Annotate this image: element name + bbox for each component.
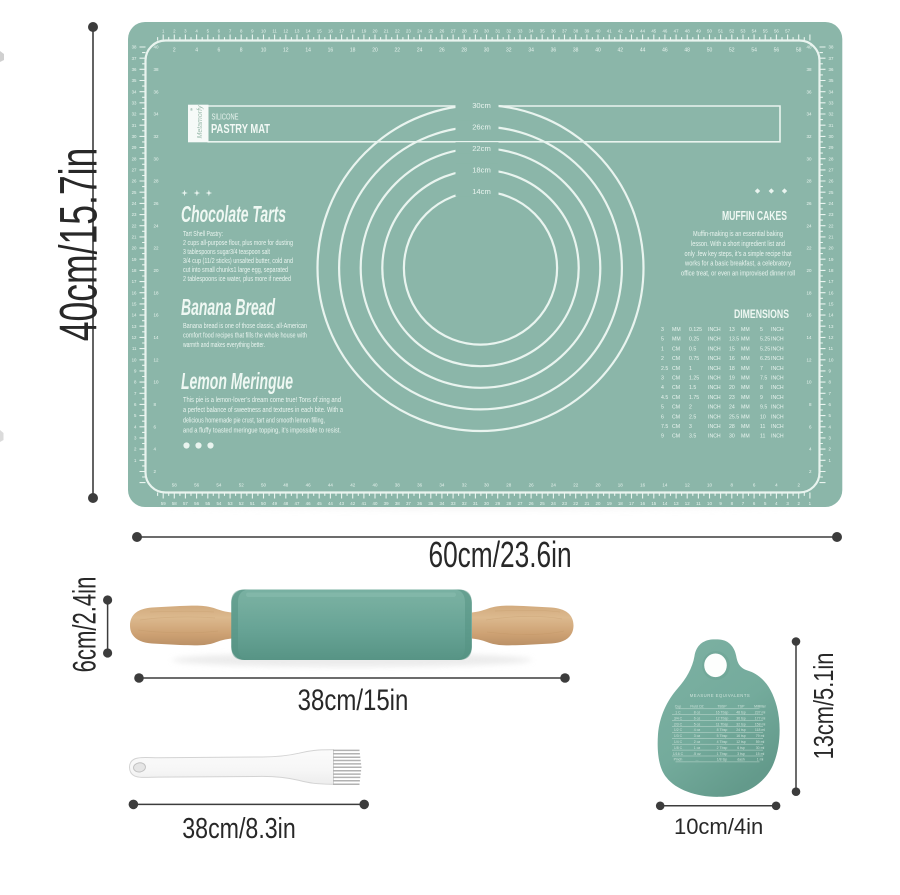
svg-text:10cm/4in: 10cm/4in bbox=[674, 814, 763, 839]
svg-text:28: 28 bbox=[729, 424, 735, 430]
svg-text:32: 32 bbox=[154, 134, 160, 139]
svg-text:28: 28 bbox=[462, 29, 467, 34]
svg-text:21: 21 bbox=[584, 501, 589, 506]
svg-text:8: 8 bbox=[760, 385, 763, 391]
svg-text:MM: MM bbox=[672, 327, 681, 333]
svg-text:54: 54 bbox=[752, 29, 757, 34]
svg-text:46: 46 bbox=[662, 48, 668, 54]
svg-text:38: 38 bbox=[806, 67, 812, 72]
svg-text:23: 23 bbox=[406, 29, 411, 34]
svg-text:29: 29 bbox=[473, 29, 478, 34]
svg-text:47: 47 bbox=[295, 501, 300, 506]
svg-text:15: 15 bbox=[651, 501, 656, 506]
svg-text:32 tsp: 32 tsp bbox=[736, 722, 746, 726]
svg-text:0.75: 0.75 bbox=[689, 356, 699, 362]
svg-text:15: 15 bbox=[317, 29, 322, 34]
svg-text:12: 12 bbox=[685, 483, 691, 488]
svg-text:MUFFIN CAKES: MUFFIN CAKES bbox=[722, 209, 787, 223]
svg-text:1/4 C: 1/4 C bbox=[674, 740, 683, 744]
svg-text:31: 31 bbox=[829, 123, 834, 128]
svg-text:44: 44 bbox=[328, 501, 333, 506]
svg-text:10: 10 bbox=[707, 501, 712, 506]
svg-text:36: 36 bbox=[829, 67, 834, 72]
svg-text:MM: MM bbox=[741, 414, 750, 420]
svg-text:19: 19 bbox=[729, 376, 735, 382]
svg-text:36: 36 bbox=[417, 501, 422, 506]
svg-text:22: 22 bbox=[154, 246, 160, 251]
svg-text:1.5: 1.5 bbox=[689, 385, 696, 391]
svg-text:52: 52 bbox=[239, 501, 244, 506]
svg-text:25: 25 bbox=[829, 190, 834, 195]
svg-text:41: 41 bbox=[607, 29, 612, 34]
svg-text:23: 23 bbox=[132, 212, 137, 217]
svg-text:INCH: INCH bbox=[708, 395, 721, 401]
svg-text:38: 38 bbox=[573, 48, 579, 54]
svg-text:37: 37 bbox=[829, 56, 834, 61]
svg-text:34: 34 bbox=[132, 89, 137, 94]
svg-text:18: 18 bbox=[806, 290, 812, 295]
svg-text:34: 34 bbox=[439, 483, 445, 488]
svg-text:1 C: 1 C bbox=[675, 711, 681, 715]
svg-text:6.25: 6.25 bbox=[760, 356, 770, 362]
svg-text:14: 14 bbox=[662, 501, 667, 506]
svg-text:INCH: INCH bbox=[771, 337, 784, 343]
svg-text:30: 30 bbox=[484, 29, 489, 34]
svg-text:CM: CM bbox=[672, 356, 680, 362]
svg-text:46: 46 bbox=[306, 483, 312, 488]
svg-text:27: 27 bbox=[829, 168, 834, 173]
svg-text:4: 4 bbox=[195, 48, 198, 54]
svg-text:INCH: INCH bbox=[708, 366, 721, 372]
svg-text:22: 22 bbox=[573, 501, 578, 506]
svg-text:177 ml: 177 ml bbox=[755, 716, 766, 720]
svg-text:...: ... bbox=[696, 758, 699, 762]
svg-text:52: 52 bbox=[729, 48, 735, 54]
svg-text:24: 24 bbox=[829, 201, 834, 206]
svg-text:26: 26 bbox=[806, 201, 812, 206]
svg-text:30: 30 bbox=[154, 156, 160, 161]
svg-text:19: 19 bbox=[132, 257, 137, 262]
svg-text:8 oz: 8 oz bbox=[694, 711, 701, 715]
svg-text:13: 13 bbox=[295, 29, 300, 34]
svg-text:28: 28 bbox=[506, 483, 512, 488]
svg-text:17: 17 bbox=[629, 501, 634, 506]
svg-text:warmth and makes everything be: warmth and makes everything better. bbox=[182, 342, 265, 349]
svg-text:1/8 tsp: 1/8 tsp bbox=[717, 758, 728, 762]
svg-text:Banana Bread: Banana Bread bbox=[181, 294, 276, 320]
svg-text:53: 53 bbox=[741, 29, 746, 34]
svg-text:43: 43 bbox=[339, 501, 344, 506]
svg-text:SILICONE: SILICONE bbox=[212, 113, 239, 122]
svg-text:7: 7 bbox=[760, 366, 763, 372]
svg-text:20: 20 bbox=[806, 268, 812, 273]
svg-text:2: 2 bbox=[173, 48, 176, 54]
svg-text:35: 35 bbox=[132, 78, 137, 83]
svg-text:3.5: 3.5 bbox=[689, 434, 696, 440]
svg-text:®: ® bbox=[190, 107, 193, 112]
svg-text:51: 51 bbox=[250, 501, 255, 506]
svg-text:12 Tbsp: 12 Tbsp bbox=[716, 716, 729, 720]
svg-text:MM: MM bbox=[741, 385, 750, 391]
svg-text:6: 6 bbox=[661, 414, 664, 420]
svg-text:16 Tbsp: 16 Tbsp bbox=[716, 711, 729, 715]
svg-text:32: 32 bbox=[829, 112, 834, 117]
svg-text:54: 54 bbox=[216, 501, 221, 506]
svg-text:51: 51 bbox=[718, 29, 723, 34]
svg-text:22: 22 bbox=[829, 223, 834, 228]
svg-text:52: 52 bbox=[729, 29, 734, 34]
svg-text:1/2 C: 1/2 C bbox=[674, 728, 683, 732]
svg-text:50: 50 bbox=[707, 48, 713, 54]
svg-text:9.5: 9.5 bbox=[760, 405, 767, 411]
svg-text:6 tsp: 6 tsp bbox=[737, 746, 745, 750]
svg-text:27: 27 bbox=[132, 168, 137, 173]
svg-text:7.5: 7.5 bbox=[661, 424, 668, 430]
svg-text:15: 15 bbox=[829, 302, 834, 307]
svg-text:17: 17 bbox=[132, 279, 137, 284]
svg-text:44: 44 bbox=[640, 29, 645, 34]
svg-text:5: 5 bbox=[760, 327, 763, 333]
svg-text:19: 19 bbox=[607, 501, 612, 506]
svg-text:40: 40 bbox=[806, 45, 812, 50]
svg-text:24: 24 bbox=[551, 483, 557, 488]
svg-text:34: 34 bbox=[529, 29, 534, 34]
svg-text:DIMENSIONS: DIMENSIONS bbox=[734, 309, 789, 321]
svg-text:14: 14 bbox=[305, 48, 311, 54]
svg-text:40: 40 bbox=[154, 45, 160, 50]
svg-text:works for a basic breakfast, a: works for a basic breakfast, a celebrato… bbox=[684, 261, 791, 268]
svg-text:12: 12 bbox=[132, 335, 137, 340]
svg-text:34: 34 bbox=[154, 112, 160, 117]
svg-text:30: 30 bbox=[484, 48, 490, 54]
svg-text:2 oz: 2 oz bbox=[694, 740, 701, 744]
svg-text:5.25: 5.25 bbox=[760, 337, 770, 343]
svg-text:PASTRY MAT: PASTRY MAT bbox=[211, 122, 270, 136]
svg-text:INCH: INCH bbox=[708, 356, 721, 362]
svg-text:58: 58 bbox=[172, 501, 177, 506]
svg-text:36: 36 bbox=[132, 67, 137, 72]
svg-text:1/8 C: 1/8 C bbox=[674, 746, 683, 750]
svg-text:44: 44 bbox=[328, 483, 334, 488]
svg-text:32: 32 bbox=[462, 483, 468, 488]
svg-text:48: 48 bbox=[283, 501, 288, 506]
svg-text:12 tsp: 12 tsp bbox=[736, 740, 746, 744]
svg-text:55: 55 bbox=[763, 29, 768, 34]
svg-text:30: 30 bbox=[806, 156, 812, 161]
svg-text:55: 55 bbox=[205, 501, 210, 506]
svg-text:10: 10 bbox=[154, 380, 160, 385]
svg-text:INCH: INCH bbox=[771, 414, 784, 420]
svg-text:40: 40 bbox=[595, 48, 601, 54]
svg-text:48: 48 bbox=[685, 29, 690, 34]
svg-text:18: 18 bbox=[350, 29, 355, 34]
svg-text:24: 24 bbox=[806, 223, 812, 228]
svg-text:11: 11 bbox=[760, 434, 765, 440]
svg-text:3: 3 bbox=[661, 327, 664, 333]
svg-text:32: 32 bbox=[506, 48, 512, 54]
svg-text:1 ml: 1 ml bbox=[757, 758, 764, 762]
svg-text:Chocolate Tarts: Chocolate Tarts bbox=[181, 201, 286, 227]
svg-text:9: 9 bbox=[661, 434, 664, 440]
svg-text:53: 53 bbox=[228, 501, 233, 506]
svg-text:42: 42 bbox=[618, 48, 624, 54]
svg-text:4: 4 bbox=[661, 385, 664, 391]
svg-text:34: 34 bbox=[829, 89, 834, 94]
svg-text:237 ml: 237 ml bbox=[755, 711, 766, 715]
svg-text:46: 46 bbox=[662, 29, 667, 34]
svg-text:10: 10 bbox=[760, 414, 766, 420]
svg-text:Banana bread is one of those c: Banana bread is one of those classic, al… bbox=[183, 323, 307, 330]
svg-text:Pinch: Pinch bbox=[674, 758, 683, 762]
svg-text:12: 12 bbox=[283, 29, 288, 34]
svg-text:30: 30 bbox=[729, 434, 735, 440]
svg-text:50: 50 bbox=[707, 29, 712, 34]
svg-text:2.5: 2.5 bbox=[689, 414, 696, 420]
svg-text:5: 5 bbox=[661, 405, 664, 411]
svg-text:57: 57 bbox=[183, 501, 188, 506]
svg-text:MM: MM bbox=[741, 327, 750, 333]
svg-text:54: 54 bbox=[751, 48, 757, 54]
svg-text:54: 54 bbox=[216, 483, 222, 488]
svg-text:22: 22 bbox=[806, 246, 812, 251]
svg-text:31: 31 bbox=[132, 123, 137, 128]
svg-text:2: 2 bbox=[661, 356, 664, 362]
svg-text:2/3 C: 2/3 C bbox=[674, 722, 683, 726]
svg-text:30cm: 30cm bbox=[472, 101, 491, 110]
svg-text:INCH: INCH bbox=[708, 385, 721, 391]
svg-text:39: 39 bbox=[384, 501, 389, 506]
svg-text:20: 20 bbox=[132, 246, 137, 251]
svg-text:MM: MM bbox=[741, 337, 750, 343]
svg-text:2 tablespoons ice water, plus: 2 tablespoons ice water, plus more if ne… bbox=[183, 276, 291, 283]
svg-text:3 tablespoons sugar3/4 teaspoo: 3 tablespoons sugar3/4 teaspoon salt bbox=[183, 249, 270, 256]
svg-text:36: 36 bbox=[551, 29, 556, 34]
svg-text:26: 26 bbox=[439, 29, 444, 34]
svg-text:18: 18 bbox=[618, 501, 623, 506]
svg-text:43: 43 bbox=[629, 29, 634, 34]
svg-text:MM: MM bbox=[741, 376, 750, 382]
svg-text:33: 33 bbox=[829, 100, 834, 105]
svg-text:3: 3 bbox=[661, 376, 664, 382]
svg-text:11: 11 bbox=[829, 346, 834, 351]
svg-text:CM: CM bbox=[672, 405, 680, 411]
svg-text:INCH: INCH bbox=[708, 376, 721, 382]
svg-text:36: 36 bbox=[417, 483, 423, 488]
svg-text:MM: MM bbox=[741, 395, 750, 401]
svg-text:8: 8 bbox=[240, 48, 243, 54]
svg-text:office treat, or even an impro: office treat, or even an improvised dinn… bbox=[681, 271, 795, 278]
svg-text:26: 26 bbox=[529, 501, 534, 506]
svg-text:24: 24 bbox=[154, 223, 160, 228]
svg-text:24: 24 bbox=[729, 405, 735, 411]
svg-text:49: 49 bbox=[272, 501, 277, 506]
svg-text:dash: dash bbox=[737, 758, 745, 762]
svg-text:CM: CM bbox=[672, 414, 680, 420]
svg-text:12: 12 bbox=[829, 335, 834, 340]
svg-text:37: 37 bbox=[406, 501, 411, 506]
svg-text:13cm/5.1in: 13cm/5.1in bbox=[808, 653, 839, 760]
svg-text:36 tsp: 36 tsp bbox=[736, 716, 746, 720]
svg-text:31: 31 bbox=[495, 29, 500, 34]
svg-text:15: 15 bbox=[132, 302, 137, 307]
svg-text:12: 12 bbox=[154, 357, 160, 362]
svg-text:79 ml: 79 ml bbox=[756, 734, 765, 738]
svg-text:44: 44 bbox=[640, 48, 646, 54]
svg-text:34: 34 bbox=[806, 112, 812, 117]
svg-text:25.5: 25.5 bbox=[729, 414, 739, 420]
svg-text:21: 21 bbox=[132, 235, 137, 240]
svg-text:12: 12 bbox=[283, 48, 289, 54]
svg-text:20: 20 bbox=[729, 385, 735, 391]
svg-text:28: 28 bbox=[829, 156, 834, 161]
svg-text:10: 10 bbox=[261, 29, 266, 34]
svg-text:19: 19 bbox=[361, 29, 366, 34]
svg-text:CM: CM bbox=[672, 424, 680, 430]
svg-text:14: 14 bbox=[154, 335, 160, 340]
svg-text:and a fluffy toasted meringue: and a fluffy toasted meringue topping, i… bbox=[183, 428, 341, 435]
svg-text:18: 18 bbox=[618, 483, 624, 488]
svg-text:5.25: 5.25 bbox=[760, 346, 770, 352]
svg-text:9: 9 bbox=[760, 395, 763, 401]
svg-text:41: 41 bbox=[361, 501, 366, 506]
svg-text:11: 11 bbox=[132, 346, 137, 351]
svg-text:25: 25 bbox=[540, 501, 545, 506]
svg-text:19: 19 bbox=[829, 257, 834, 262]
svg-text:4 oz: 4 oz bbox=[694, 728, 701, 732]
svg-text:3 oz: 3 oz bbox=[694, 734, 701, 738]
svg-text:INCH: INCH bbox=[771, 327, 784, 333]
svg-text:CM: CM bbox=[672, 346, 680, 352]
svg-text:3/4 C: 3/4 C bbox=[674, 716, 683, 720]
svg-text:40: 40 bbox=[372, 483, 378, 488]
svg-text:1.75: 1.75 bbox=[689, 395, 699, 401]
svg-text:1: 1 bbox=[661, 346, 664, 352]
svg-text:This pie is a lemon-lover’s dr: This pie is a lemon-lover’s dream come t… bbox=[183, 397, 341, 404]
svg-text:13: 13 bbox=[829, 324, 834, 329]
svg-text:INCH: INCH bbox=[771, 434, 784, 440]
svg-text:12: 12 bbox=[685, 501, 690, 506]
svg-text:15 ml: 15 ml bbox=[756, 752, 765, 756]
svg-text:60cm/23.6in: 60cm/23.6in bbox=[428, 534, 571, 575]
svg-text:24: 24 bbox=[417, 48, 423, 54]
svg-text:36: 36 bbox=[154, 89, 160, 94]
svg-text:5 oz: 5 oz bbox=[694, 722, 701, 726]
svg-text:21: 21 bbox=[384, 29, 389, 34]
svg-text:30 ml: 30 ml bbox=[756, 746, 765, 750]
svg-text:MM: MM bbox=[741, 405, 750, 411]
svg-text:INCH: INCH bbox=[771, 366, 784, 372]
svg-text:49: 49 bbox=[696, 29, 701, 34]
svg-text:40: 40 bbox=[373, 501, 378, 506]
svg-text:INCH: INCH bbox=[708, 346, 721, 352]
svg-text:11: 11 bbox=[272, 29, 277, 34]
svg-text:1/3 C: 1/3 C bbox=[674, 734, 683, 738]
svg-text:3/4 cup (11/2 sticks) unsalted: 3/4 cup (11/2 sticks) unsalted butter, c… bbox=[183, 258, 293, 265]
svg-text:25: 25 bbox=[428, 29, 433, 34]
svg-text:48 tsp: 48 tsp bbox=[736, 711, 746, 715]
svg-text:10: 10 bbox=[829, 357, 834, 362]
svg-text:10: 10 bbox=[132, 357, 137, 362]
svg-text:45: 45 bbox=[317, 501, 322, 506]
svg-text:20: 20 bbox=[595, 483, 601, 488]
svg-text:2: 2 bbox=[689, 405, 692, 411]
svg-text:TBSP: TBSP bbox=[717, 705, 727, 709]
svg-text:15: 15 bbox=[729, 346, 735, 352]
svg-text:38: 38 bbox=[132, 45, 137, 50]
svg-text:Fluid OZ: Fluid OZ bbox=[690, 705, 704, 709]
svg-text:28: 28 bbox=[506, 501, 511, 506]
svg-text:32: 32 bbox=[806, 134, 812, 139]
svg-text:Tart Shell Pastry:: Tart Shell Pastry: bbox=[183, 231, 223, 238]
svg-text:14: 14 bbox=[132, 313, 137, 318]
svg-text:18: 18 bbox=[350, 48, 356, 54]
svg-text:27: 27 bbox=[518, 501, 523, 506]
svg-text:33: 33 bbox=[518, 29, 523, 34]
svg-text:42: 42 bbox=[350, 501, 355, 506]
svg-text:12: 12 bbox=[806, 357, 812, 362]
svg-text:18cm: 18cm bbox=[472, 166, 491, 175]
svg-text:35: 35 bbox=[829, 78, 834, 83]
svg-text:20: 20 bbox=[596, 501, 601, 506]
svg-text:0.5: 0.5 bbox=[689, 346, 696, 352]
svg-text:1 Tbsp: 1 Tbsp bbox=[717, 752, 728, 756]
svg-text:24: 24 bbox=[417, 29, 422, 34]
svg-text:28: 28 bbox=[461, 48, 467, 54]
svg-text:16: 16 bbox=[640, 483, 646, 488]
svg-text:MEASURE EQUIVALENTS: MEASURE EQUIVALENTS bbox=[690, 693, 750, 698]
svg-text:28: 28 bbox=[132, 156, 137, 161]
svg-text:2 cups all-purpose flour, plus: 2 cups all-purpose flour, plus more for … bbox=[183, 240, 293, 247]
svg-text:35: 35 bbox=[428, 501, 433, 506]
svg-text:16: 16 bbox=[806, 313, 812, 318]
svg-text:22: 22 bbox=[132, 223, 137, 228]
svg-text:1/16 C: 1/16 C bbox=[673, 752, 684, 756]
svg-text:16: 16 bbox=[154, 313, 160, 318]
svg-text:33: 33 bbox=[451, 501, 456, 506]
svg-text:38cm/15in: 38cm/15in bbox=[298, 682, 409, 716]
svg-text:30: 30 bbox=[829, 134, 834, 139]
svg-text:57: 57 bbox=[785, 29, 790, 34]
svg-text:MM: MM bbox=[741, 434, 750, 440]
svg-text:16: 16 bbox=[729, 356, 735, 362]
svg-text:6: 6 bbox=[218, 48, 221, 54]
svg-text:56: 56 bbox=[774, 48, 780, 54]
svg-text:0.125: 0.125 bbox=[689, 327, 702, 333]
svg-text:20: 20 bbox=[372, 48, 378, 54]
svg-text:20: 20 bbox=[373, 29, 378, 34]
svg-text:24: 24 bbox=[132, 201, 137, 206]
svg-text:1 oz: 1 oz bbox=[694, 746, 701, 750]
svg-text:16: 16 bbox=[328, 48, 334, 54]
svg-text:52: 52 bbox=[239, 483, 245, 488]
svg-text:17: 17 bbox=[829, 279, 834, 284]
svg-text:22: 22 bbox=[395, 29, 400, 34]
svg-text:CM: CM bbox=[672, 434, 680, 440]
svg-text:13: 13 bbox=[674, 501, 679, 506]
svg-text:35: 35 bbox=[540, 29, 545, 34]
svg-text:26: 26 bbox=[154, 201, 160, 206]
svg-text:20: 20 bbox=[829, 246, 834, 251]
svg-text:5 Tbsp: 5 Tbsp bbox=[717, 734, 728, 738]
svg-text:CM: CM bbox=[672, 366, 680, 372]
svg-text:32: 32 bbox=[132, 112, 137, 117]
svg-text:48: 48 bbox=[283, 483, 289, 488]
svg-text:Metamorfy: Metamorfy bbox=[197, 105, 204, 139]
svg-text:26: 26 bbox=[439, 48, 445, 54]
svg-text:29: 29 bbox=[132, 145, 137, 150]
svg-text:56: 56 bbox=[774, 29, 779, 34]
svg-text:4 Tbsp: 4 Tbsp bbox=[717, 740, 728, 744]
